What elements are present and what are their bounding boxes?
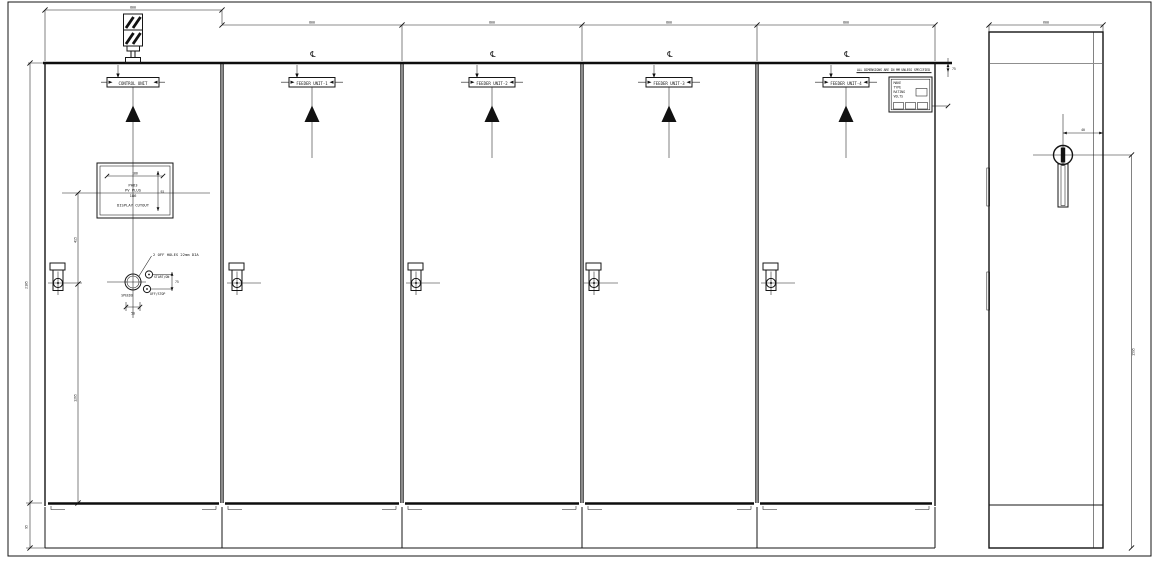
inner-dimensions: 415 1265 [74,190,81,505]
door-swing-arrow-icon [485,106,500,123]
nameplate-row-1: MAKE [894,81,902,85]
dim-panel3-width: 800 [489,21,495,25]
dim-arrow-icon [648,81,652,84]
nameplate-row-3: RATING [894,90,906,94]
dim-arrow-icon [157,171,160,175]
dim-arrow-icon [825,81,829,84]
engineering-drawing-canvas: 800 800 800 800 800 2105 95 [0,0,1154,561]
panel-1-label-text: CONTROL UNIT [119,81,148,86]
panel-1: CONTROL UNIT 186 92 PH63 PV PLUS 186 DIS… [48,14,210,506]
panel-2-label-text: FEEDER UNIT-1 [296,81,328,86]
dim-panel4-width: 800 [666,21,672,25]
panel-4: ℄ FEEDER UNIT-3 [584,50,700,295]
beacon-stack [124,14,143,63]
centerline-symbol: ℄ [489,50,496,59]
door-handle-2 [227,263,261,295]
door-handle-1 [48,263,82,295]
cutout-text-2: PV PLUS [125,188,142,193]
dim-arrow-icon [109,81,113,84]
dim-top-right: 75 [952,67,956,71]
dim-arrow-icon [171,272,174,276]
top-right-dimension: 75 [947,58,956,77]
plinth [45,507,935,548]
dim-cutout-width: 186 [132,172,138,176]
nameplate-row-2: TYPE [894,86,902,90]
dim-panel5-width: 800 [843,21,849,25]
dim-side-height: 1595 [1132,348,1136,356]
cutout-text-4: DISPLAY CUTOUT [117,203,150,208]
drawing-border [8,2,1151,556]
dim-panel1-width: 800 [130,6,136,10]
door-swing-arrow-icon [662,106,677,123]
door-handle-4 [584,263,618,295]
side-body [989,32,1103,548]
left-dimensions: 2105 95 [25,60,46,550]
speedo-label: SPEEDO [121,294,133,298]
door-swing-arrow-icon [839,106,854,123]
dim-side-depth: 600 [1043,21,1049,25]
nameplate-row-4: VOLTS [894,95,904,99]
centerline-symbol: ℄ [309,50,316,59]
door-handle-5 [761,263,795,295]
front-elevation: 800 800 800 800 800 2105 95 [25,6,956,551]
centerline-symbol: ℄ [843,50,850,59]
door-bottom-edges [48,504,932,510]
dim-panel2-width: 800 [309,21,315,25]
note-text: ALL DIMENSIONS ARE IN MM UNLESS SPECIFIE… [857,68,930,72]
dim-arrow-icon [864,81,868,84]
dim-arrow-icon [1063,132,1067,135]
dim-buttons-vertical: 75 [175,280,179,284]
dim-cutout-offset-bottom: 1265 [74,394,78,402]
side-elevation: 600 40 1595 [986,21,1135,551]
panel-5: ℄ FEEDER UNIT-4 [761,50,877,295]
panel-2: ℄ FEEDER UNIT-1 [227,50,343,295]
dim-arrow-icon [154,81,158,84]
door-swing-arrow-icon [305,106,320,123]
dim-cutout-height: 92 [161,190,165,194]
door-swing-arrow-icon [126,106,141,123]
nameplate: MAKE TYPE RATING VOLTS [889,77,950,112]
dim-arrow-icon [330,81,334,84]
border-frame [8,2,1151,556]
dim-arrow-icon [471,81,475,84]
panel-1-label: CONTROL UNIT [101,65,165,87]
stop-label: OFF/STOP [150,292,165,296]
dim-plinth-height: 95 [25,525,29,529]
dim-cutout-offset-top: 415 [74,237,78,243]
cabinet-shell [28,63,952,506]
start-label: START/ON [154,275,169,279]
panel-4-label-text: FEEDER UNIT-3 [653,81,685,86]
holes-note-text: 2 OFF HOLES 22mm DIA [153,252,199,257]
panel-3: ℄ FEEDER UNIT-2 [406,50,523,295]
dim-arrow-icon [157,207,160,211]
dim-arrow-icon [510,81,514,84]
control-buttons: 75 2 OFF HOLES 22mm DIA START/ON OFF/STO… [107,252,199,316]
cutout-text-3: 186 [130,193,138,198]
door-handle-3 [406,263,440,295]
dim-arrow-icon [687,81,691,84]
centerline-symbol: ℄ [666,50,673,59]
panel-5-label-text: FEEDER UNIT-4 [830,81,862,86]
side-handle-offset-dimension: 40 [1063,128,1103,134]
side-right-dimension: 1595 [1129,152,1136,550]
dim-arrow-icon [291,81,295,84]
display-cutout: 186 92 PH63 PV PLUS 186 DISPLAY CUTOUT [62,163,210,218]
dim-arrow-icon [947,68,950,72]
dim-handle-offset: 40 [1081,128,1085,132]
dim-door-height: 2105 [25,281,29,289]
panel-3-label-text: FEEDER UNIT-2 [476,81,508,86]
side-top-dimension: 600 [986,21,1105,32]
dim-buttons-horizontal: 50 [131,312,135,316]
general-note: ALL DIMENSIONS ARE IN MM UNLESS SPECIFIE… [857,68,932,73]
